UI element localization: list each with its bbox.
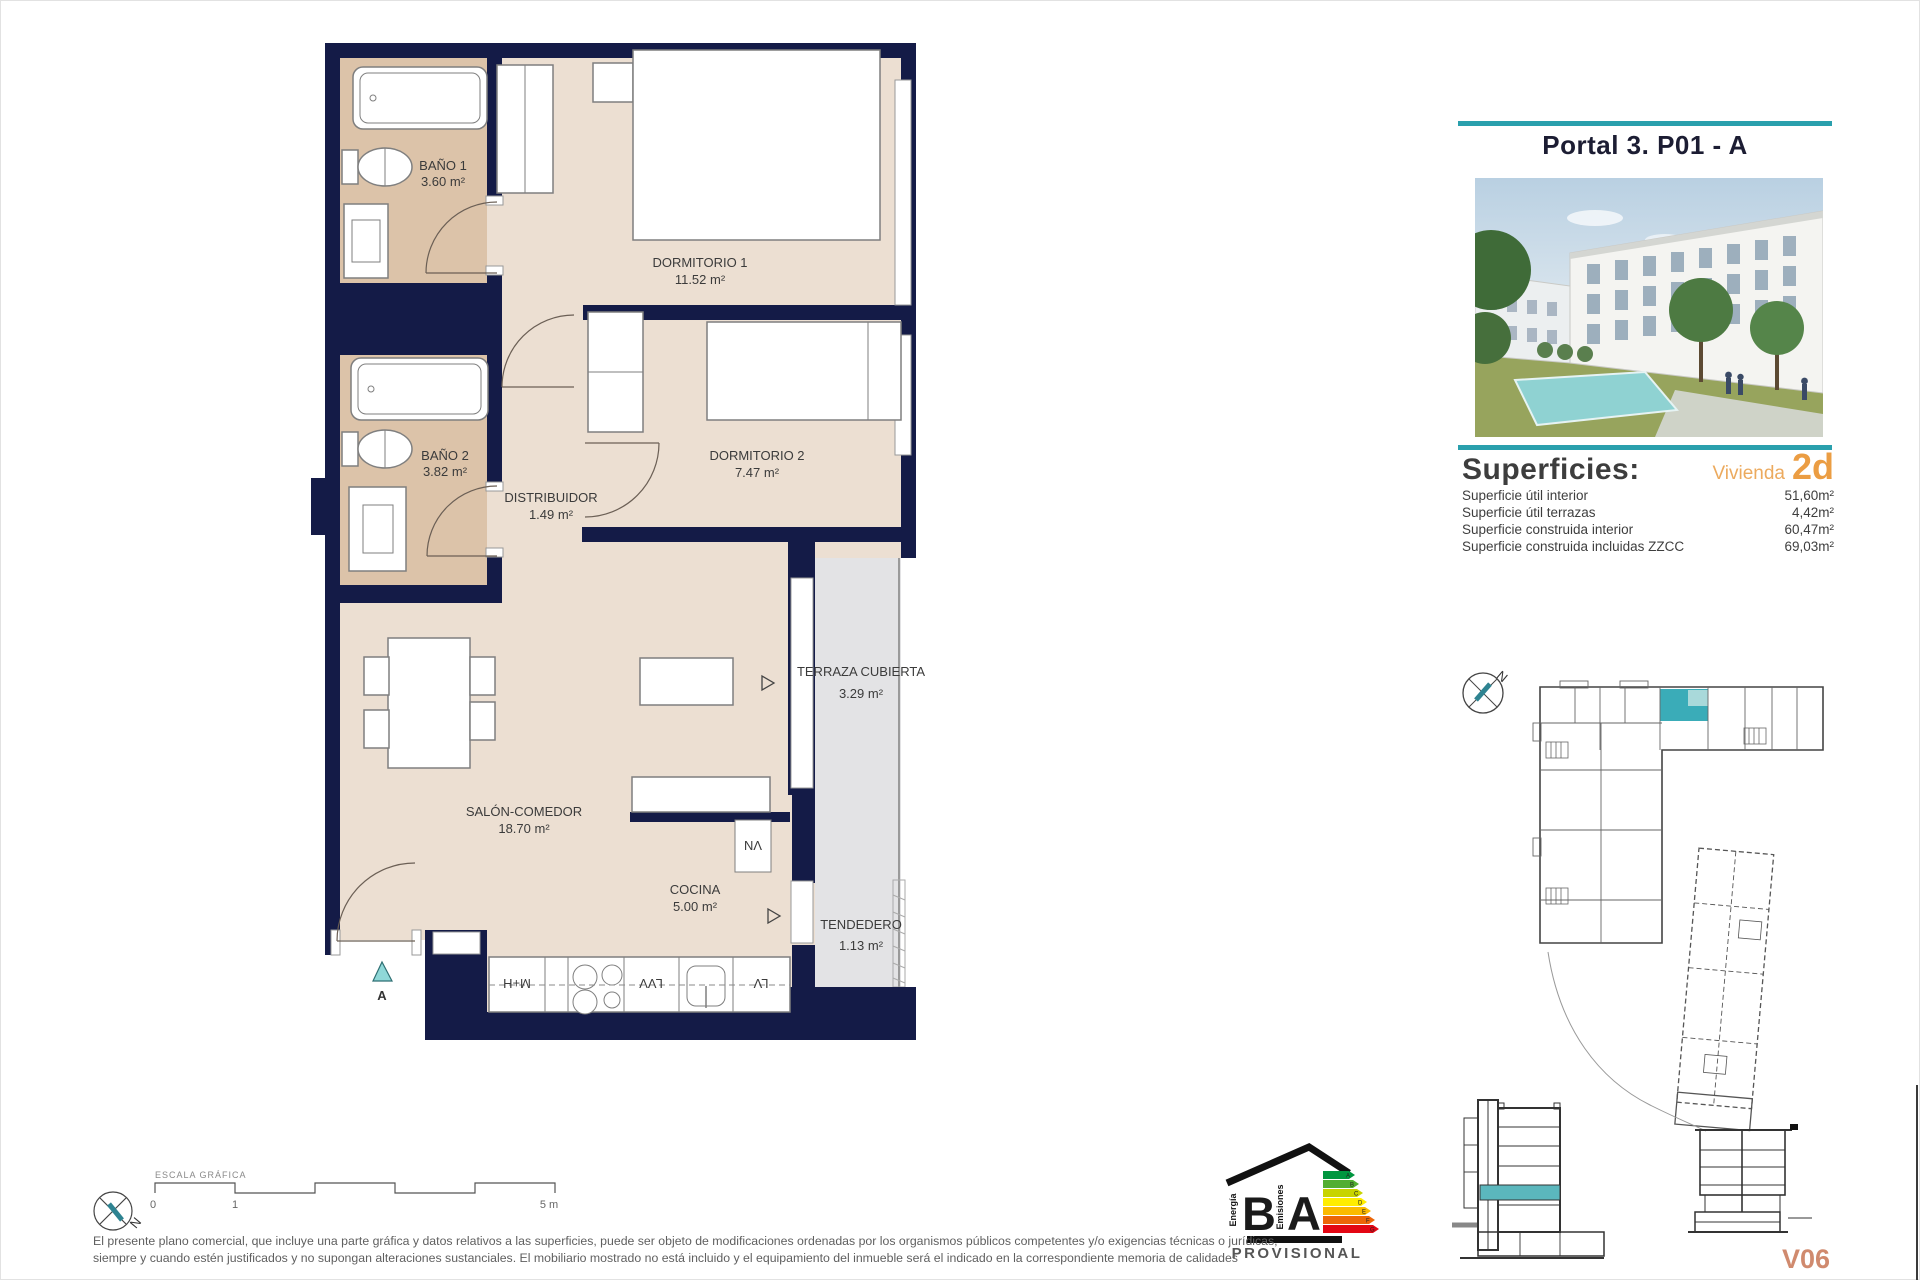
tree bbox=[1669, 278, 1733, 342]
bed-2 bbox=[707, 322, 901, 420]
disclaimer-line-2: siempre y cuando estén justificados y no… bbox=[93, 1251, 1253, 1265]
superficies-panel: Superficies: Vivienda 2d Superficie útil… bbox=[1462, 452, 1834, 555]
entrance-triangle bbox=[373, 962, 392, 981]
scale-tick: 5 m bbox=[540, 1199, 558, 1211]
superficies-row-value: 69,03m² bbox=[1784, 538, 1834, 555]
hob-burner bbox=[602, 965, 622, 985]
toilet-1-tank bbox=[342, 150, 358, 184]
disclaimer-line-1: El presente plano comercial, que incluye… bbox=[93, 1234, 1253, 1248]
superficies-title: Superficies: bbox=[1462, 453, 1640, 487]
appliance-label: M+H bbox=[503, 976, 531, 991]
floor-plan: A BAÑO 1 3.60 m² BAÑO 2 3.82 m² DORMITOR… bbox=[311, 43, 925, 1040]
chair bbox=[364, 710, 389, 748]
room-label: TERRAZA CUBIERTA bbox=[797, 664, 925, 679]
bed-1 bbox=[633, 50, 880, 240]
superficies-row-value: 60,47m² bbox=[1784, 521, 1834, 538]
shaft-label: VN bbox=[744, 838, 762, 853]
tree bbox=[1750, 301, 1804, 355]
scale-letter: B bbox=[1350, 1183, 1354, 1189]
superficies-row-label: Superficie construida interior bbox=[1462, 521, 1633, 538]
appliance-label: LVV bbox=[639, 976, 663, 991]
room-area: 5.00 m² bbox=[673, 899, 718, 914]
compass-site: N bbox=[1463, 668, 1511, 713]
superficies-row-value: 51,60m² bbox=[1784, 487, 1834, 504]
page-title: Portal 3. P01 - A bbox=[1458, 130, 1832, 161]
chair bbox=[470, 702, 495, 740]
scale-tick: 1 bbox=[232, 1199, 238, 1211]
room-label: SALÓN-COMEDOR bbox=[466, 804, 582, 819]
chair bbox=[470, 657, 495, 695]
room-area: 3.82 m² bbox=[423, 464, 468, 479]
scale-tick: 0 bbox=[150, 1199, 156, 1211]
room-label: BAÑO 1 bbox=[419, 158, 467, 173]
tv-unit bbox=[640, 658, 733, 705]
disclaimer: El presente plano comercial, que incluye… bbox=[93, 1234, 1253, 1268]
chair bbox=[364, 657, 389, 695]
superficies-row-label: Superficie útil terrazas bbox=[1462, 504, 1596, 521]
sofa bbox=[632, 777, 770, 812]
room-label: BAÑO 2 bbox=[421, 448, 469, 463]
compass-needle bbox=[109, 1204, 122, 1220]
room-label: DORMITORIO 2 bbox=[709, 448, 804, 463]
room-area: 11.52 m² bbox=[675, 272, 726, 287]
energy-right-text: Emisiones bbox=[1275, 1184, 1285, 1229]
entrance-label: A bbox=[377, 988, 387, 1003]
vivienda-type: 2d bbox=[1792, 452, 1834, 482]
header-rule-top bbox=[1458, 121, 1832, 126]
energy-left-text: Energía bbox=[1228, 1193, 1238, 1227]
vivienda-label: Vivienda bbox=[1712, 463, 1785, 485]
toilet-2-tank bbox=[342, 432, 358, 466]
scale-letter: C bbox=[1354, 1192, 1359, 1198]
superficies-row: Superficie construida interior 60,47m² bbox=[1462, 521, 1834, 538]
version-label: V06 bbox=[1782, 1244, 1830, 1274]
header-rule-bottom bbox=[1458, 445, 1832, 450]
north-icon: N bbox=[127, 1214, 145, 1231]
room-label: DORMITORIO 1 bbox=[652, 255, 747, 270]
building-sections bbox=[1452, 1100, 1812, 1258]
room-area: 3.29 m² bbox=[839, 686, 884, 701]
room-label: COCINA bbox=[670, 882, 721, 897]
room-area: 7.47 m² bbox=[735, 465, 780, 480]
energy-scale-arrows: A B C D E F G bbox=[1323, 1171, 1379, 1234]
energy-letter-a: A bbox=[1287, 1187, 1321, 1240]
building-render-photo bbox=[1475, 178, 1823, 437]
room-area: 3.60 m² bbox=[421, 174, 466, 189]
scale-letter: E bbox=[1362, 1210, 1366, 1216]
north-icon: N bbox=[1494, 668, 1511, 686]
page-edge-line bbox=[1916, 1085, 1918, 1280]
superficies-row: Superficie útil terrazas 4,42m² bbox=[1462, 504, 1834, 521]
compass-bottom-left: N bbox=[94, 1192, 144, 1231]
energy-letter-b: B bbox=[1242, 1187, 1276, 1240]
room-area: 18.70 m² bbox=[498, 821, 550, 836]
section-highlight-floor bbox=[1480, 1185, 1560, 1200]
room-area: 1.49 m² bbox=[529, 507, 574, 522]
superficies-row-label: Superficie útil interior bbox=[1462, 487, 1588, 504]
scale-bar-title: ESCALA GRÁFICA bbox=[155, 1170, 247, 1180]
superficies-row-label: Superficie construida incluidas ZZCC bbox=[1462, 538, 1684, 555]
scale-letter: A bbox=[1346, 1174, 1350, 1180]
superficies-row: Superficie construida incluidas ZZCC 69,… bbox=[1462, 538, 1834, 555]
bed-1-pillow bbox=[593, 63, 633, 102]
superficies-row-value: 4,42m² bbox=[1792, 504, 1834, 521]
scale-bar: ESCALA GRÁFICA 0 1 5 m bbox=[150, 1170, 558, 1211]
scale-letter: F bbox=[1366, 1219, 1370, 1225]
room-label: TENDEDERO bbox=[820, 917, 902, 932]
site-plan: N bbox=[1463, 668, 1823, 1131]
appliance-label: LV bbox=[753, 976, 768, 991]
room-area: 1.13 m² bbox=[839, 938, 884, 953]
room-label: DISTRIBUIDOR bbox=[504, 490, 597, 505]
hob-burner bbox=[573, 990, 597, 1014]
hob-burner bbox=[604, 992, 620, 1008]
scale-letter: G bbox=[1370, 1228, 1375, 1234]
superficies-row: Superficie útil interior 51,60m² bbox=[1462, 487, 1834, 504]
scale-letter: D bbox=[1358, 1201, 1363, 1207]
dining-table bbox=[388, 638, 470, 768]
